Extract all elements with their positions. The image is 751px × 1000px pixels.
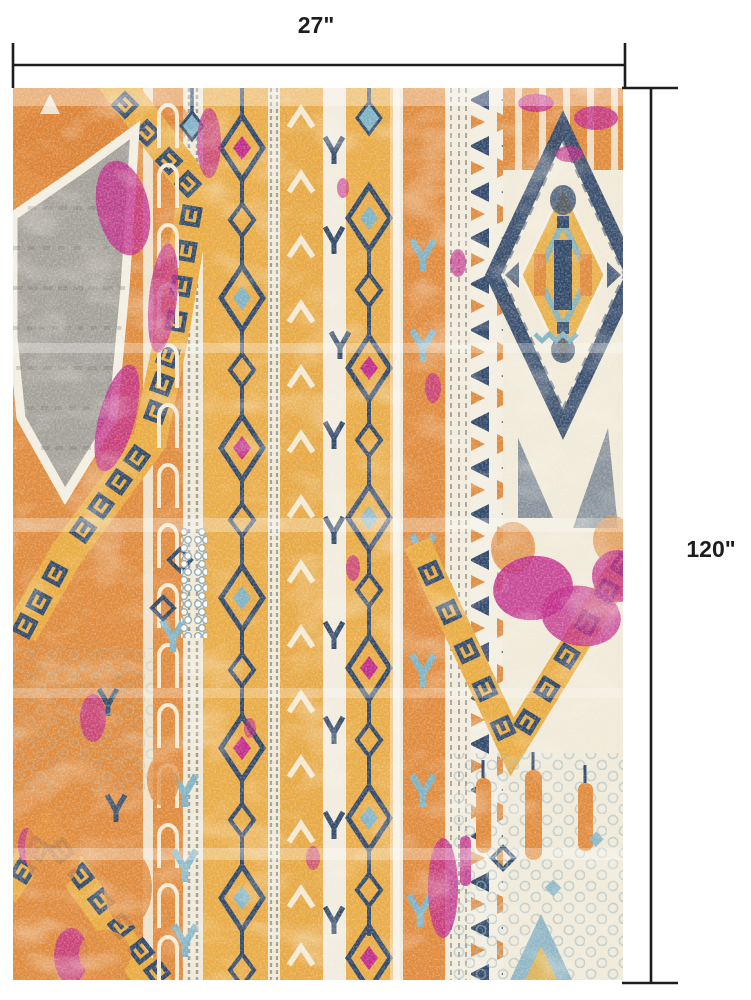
width-label: 27" — [298, 12, 335, 38]
rug-image — [3, 78, 644, 1000]
height-label: 120" — [686, 536, 735, 562]
height-dimension-line — [622, 88, 678, 983]
distress-speckle-overlay — [13, 88, 623, 980]
width-dimension-line — [13, 43, 625, 88]
diagram-svg: 27" 120" — [0, 0, 751, 1000]
product-dimension-diagram: 27" 120" — [0, 0, 751, 1000]
